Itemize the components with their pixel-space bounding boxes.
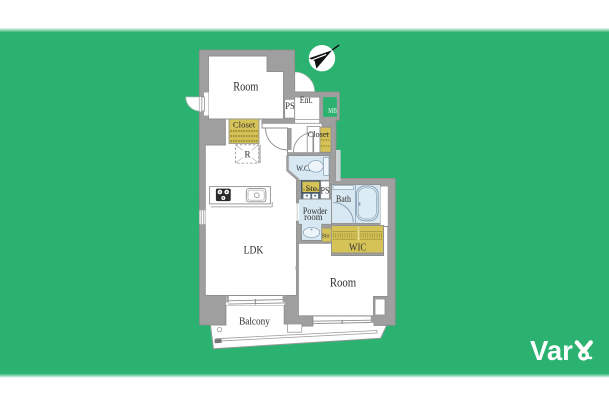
svg-text:room: room <box>304 212 322 222</box>
svg-text:Closet: Closet <box>308 129 330 139</box>
svg-text:MB: MB <box>328 106 337 115</box>
svg-text:Room: Room <box>233 79 258 93</box>
svg-text:Var: Var <box>530 335 573 366</box>
svg-text:PS: PS <box>321 186 330 196</box>
svg-text:R: R <box>244 150 250 160</box>
svg-text:Ent.: Ent. <box>300 95 313 105</box>
svg-text:Sto: Sto <box>322 233 330 240</box>
svg-text:LDK: LDK <box>244 243 264 257</box>
svg-text:WIC: WIC <box>349 243 367 254</box>
svg-text:Bath: Bath <box>336 194 351 204</box>
svg-text:Room: Room <box>330 276 357 290</box>
svg-text:Closet: Closet <box>233 120 256 130</box>
svg-text:Balcony: Balcony <box>239 317 270 328</box>
svg-text:Sto.: Sto. <box>306 183 320 193</box>
svg-text:PS: PS <box>285 101 295 111</box>
